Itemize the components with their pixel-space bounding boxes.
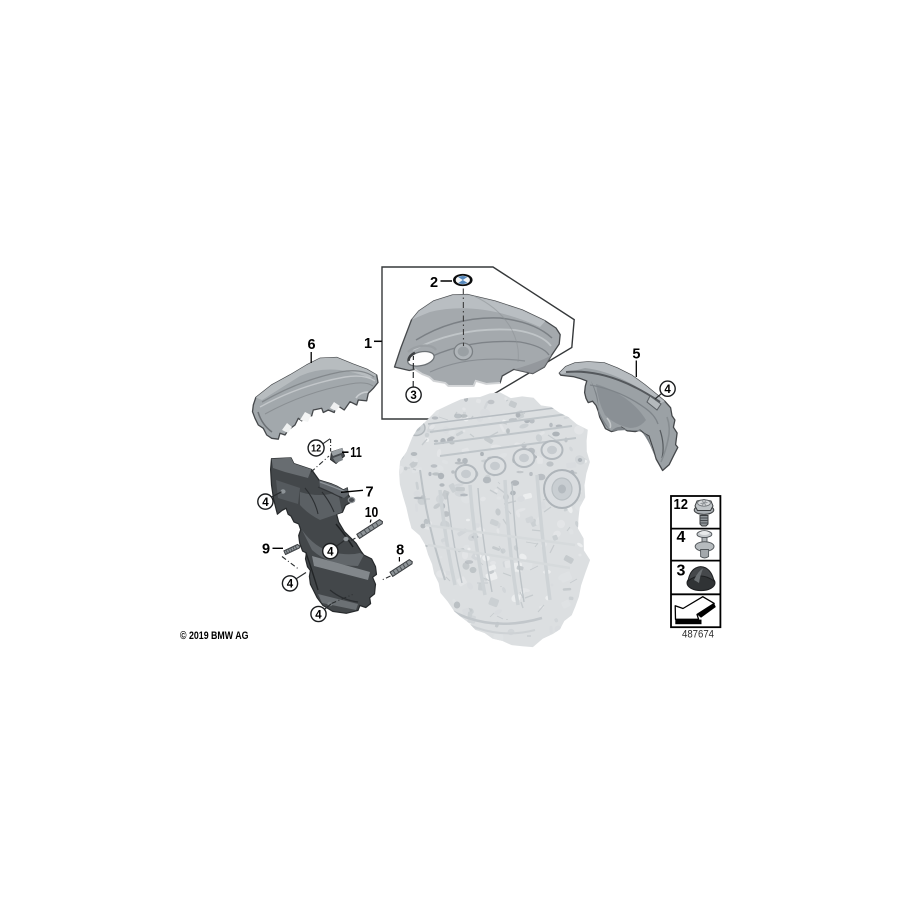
svg-text:10: 10 <box>365 505 379 521</box>
svg-text:4: 4 <box>327 546 334 558</box>
svg-text:12: 12 <box>311 444 321 455</box>
svg-text:4: 4 <box>677 529 686 546</box>
svg-text:7: 7 <box>365 485 373 501</box>
svg-text:5: 5 <box>632 347 640 363</box>
svg-text:4: 4 <box>664 384 671 396</box>
svg-text:9: 9 <box>262 542 270 558</box>
svg-text:4: 4 <box>315 609 322 621</box>
svg-text:8: 8 <box>396 543 404 559</box>
svg-text:4: 4 <box>262 497 269 509</box>
svg-text:3: 3 <box>677 563 686 580</box>
svg-text:4: 4 <box>287 579 294 591</box>
svg-text:3: 3 <box>410 390 416 402</box>
svg-text:11: 11 <box>350 445 362 461</box>
svg-text:2: 2 <box>430 275 438 291</box>
svg-text:12: 12 <box>674 496 689 513</box>
svg-text:© 2019 BMW AG: © 2019 BMW AG <box>180 630 249 642</box>
svg-text:487674: 487674 <box>682 629 714 641</box>
svg-text:1: 1 <box>364 336 372 352</box>
svg-text:6: 6 <box>307 337 315 353</box>
